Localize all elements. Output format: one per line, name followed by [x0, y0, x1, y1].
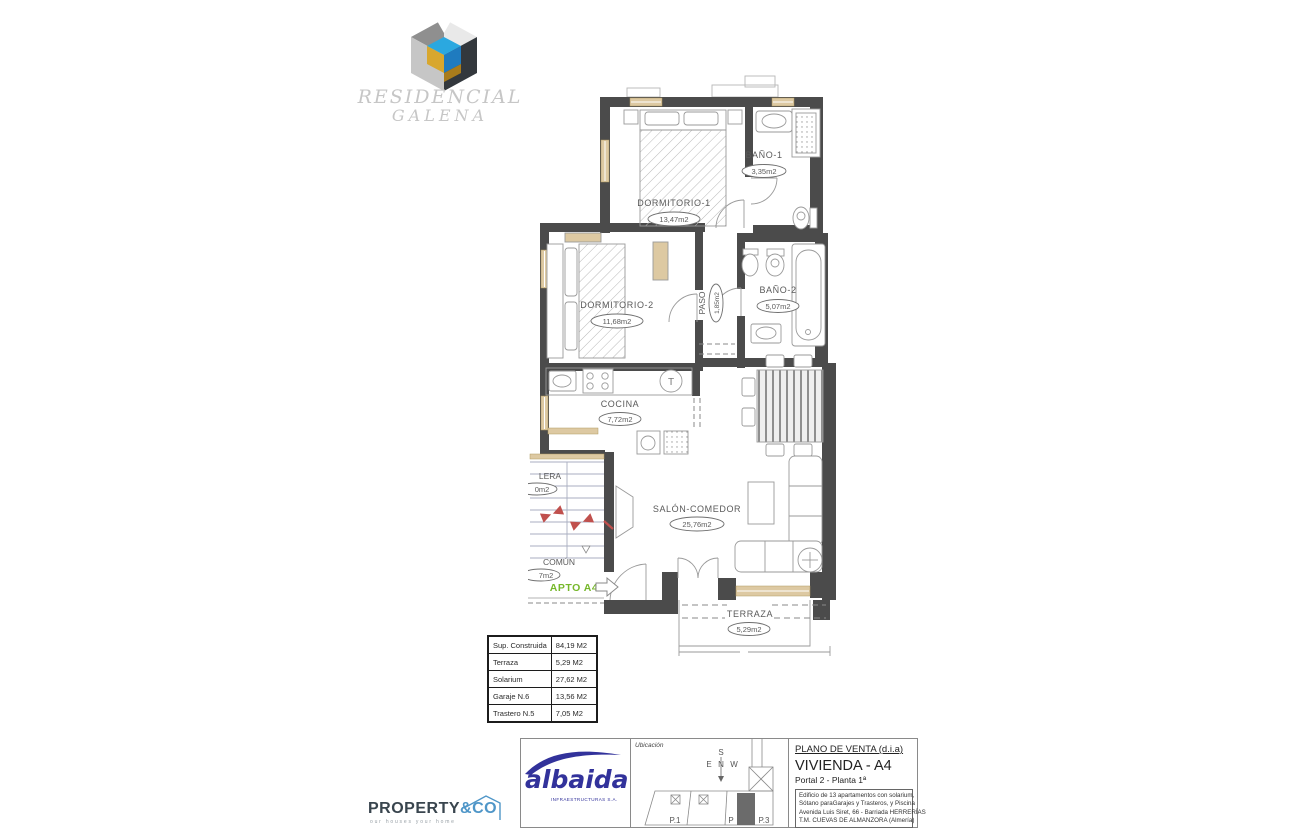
- room-area-bano-1: 3,35m2: [751, 167, 776, 176]
- room-label-bano-2: BAÑO-2: [759, 285, 796, 295]
- furniture: [546, 109, 825, 572]
- chair: [766, 355, 784, 367]
- title-block: albaida INFRAESTRUCTURAS S.A. Ubicación …: [520, 738, 918, 828]
- floor-plan: DORMITORIO-1 13,47m2 BAÑO-1 3,35m2 DORMI…: [528, 70, 850, 670]
- compass-w: W: [730, 760, 738, 769]
- dining-table: [757, 370, 823, 442]
- room-label-comun: COMÚN: [543, 557, 575, 567]
- room-label-terraza: TERRAZA: [727, 609, 773, 619]
- plot-label-p3: P.3: [759, 816, 771, 825]
- room-label-cocina: COCINA: [601, 399, 640, 409]
- room-area-salon: 25,76m2: [682, 520, 711, 529]
- area-row-label: Sup. Construida: [488, 636, 551, 654]
- coffee-table: [748, 482, 774, 524]
- water-heater-symbol: T: [668, 377, 674, 388]
- room-label-dormitorio-1: DORMITORIO-1: [637, 198, 711, 208]
- description-line: Edificio de 13 apartamentos con solarium…: [799, 792, 909, 800]
- wardrobe: [565, 233, 601, 242]
- compass-icon: S E N W: [706, 748, 738, 782]
- chair: [794, 444, 812, 456]
- stairs-down-marker: [582, 546, 590, 553]
- area-row-label: Terraza: [488, 654, 551, 671]
- room-area-bano-2: 5,07m2: [765, 302, 790, 311]
- chair: [766, 444, 784, 456]
- property-word: PROPERTY: [368, 800, 460, 817]
- brand-wordmark: RESIDENCIAL GALENA: [350, 88, 530, 124]
- area-row-label: Solarium: [488, 671, 551, 688]
- nightstand: [624, 110, 638, 124]
- bed-headboard: [547, 244, 563, 358]
- unit-title: VIVIENDA - A4: [795, 758, 913, 774]
- doc-title: PLANO DE VENTA (d.i.a): [795, 744, 913, 755]
- description-line: Avenida Luis Siret, 66 - Barriada HERRER…: [799, 809, 909, 817]
- room-label-paso: PASO: [697, 291, 707, 314]
- property-wordmark: PROPERTY&CO: [368, 800, 518, 818]
- plan-info-panel: PLANO DE VENTA (d.i.a) VIVIENDA - A4 Por…: [789, 739, 919, 827]
- room-area-escalera-clipped: 0m2: [535, 485, 550, 494]
- albaida-logo: albaida INFRAESTRUCTURAS S.A.: [521, 739, 631, 827]
- site-mini-map: S E N W P.1: [631, 739, 789, 827]
- bed-1: [640, 130, 726, 226]
- description-line: T.M. CUEVAS DE ALMANZORA (Almería): [799, 817, 909, 825]
- room-label-escalera-clipped: LERA: [539, 471, 562, 481]
- table-row: Trastero N.5 7,05 M2: [488, 705, 597, 723]
- room-area-dormitorio-2: 11,68m2: [603, 317, 632, 326]
- roof-outline: [627, 76, 778, 97]
- galena-cube-logo: [398, 16, 490, 94]
- room-area-cocina: 7,72m2: [607, 415, 632, 424]
- dishwasher: [664, 431, 688, 454]
- sofa-back: [789, 456, 822, 546]
- room-area-dormitorio-1: 13,47m2: [659, 215, 688, 224]
- room-area-terraza: 5,29m2: [736, 625, 761, 634]
- table-row: Garaje N.6 13,56 M2: [488, 688, 597, 705]
- compass-e: E: [706, 760, 711, 769]
- chair: [742, 378, 755, 396]
- chair: [794, 355, 812, 367]
- brand-line2: GALENA: [350, 108, 530, 124]
- building-description: Edificio de 13 apartamentos con solarium…: [795, 789, 913, 828]
- stairs-direction-arrows: [540, 505, 613, 531]
- albaida-wordmark: albaida: [525, 765, 629, 794]
- plot-label-p2: P: [728, 816, 733, 825]
- albaida-subtitle: INFRAESTRUCTURAS S.A.: [551, 797, 618, 802]
- table-row: Terraza 5,29 M2: [488, 654, 597, 671]
- area-row-label: Trastero N.5: [488, 705, 551, 723]
- area-row-label: Garaje N.6: [488, 688, 551, 705]
- room-label-salon: SALÓN-COMEDOR: [653, 504, 741, 514]
- plot-label-p1: P.1: [670, 816, 682, 825]
- compass-s: S: [718, 748, 723, 757]
- tv-unit: [616, 486, 633, 538]
- area-row-value: 84,19 M2: [551, 636, 597, 654]
- apto-a4-label: APTO A4: [550, 582, 598, 594]
- room-area-comun-clipped: 7m2: [539, 571, 554, 580]
- plan-sheet: RESIDENCIAL GALENA: [0, 0, 1290, 840]
- location-panel: Ubicación S E N W: [631, 739, 789, 827]
- area-row-value: 13,56 M2: [551, 688, 597, 705]
- table-row: Sup. Construida 84,19 M2: [488, 636, 597, 654]
- description-line: Sótano paraGarajes y Trasteros, y Piscin…: [799, 800, 909, 808]
- room-area-paso: 1,85m2: [714, 292, 721, 314]
- areas-table: Sup. Construida 84,19 M2 Terraza 5,29 M2…: [487, 635, 598, 723]
- table-row: Solarium 27,62 M2: [488, 671, 597, 688]
- chair: [742, 408, 755, 426]
- portal-floor: Portal 2 - Planta 1ª: [795, 775, 913, 785]
- stove: [583, 369, 613, 393]
- apto-entry-arrow-icon: [596, 578, 618, 596]
- area-row-value: 7,05 M2: [551, 705, 597, 723]
- nightstand: [728, 110, 742, 124]
- wardrobe: [653, 242, 668, 280]
- brand-line1: RESIDENCIAL: [350, 88, 530, 107]
- house-outline-icon: [460, 792, 504, 822]
- room-label-bano-1: BAÑO-1: [745, 150, 782, 160]
- room-label-dormitorio-2: DORMITORIO-2: [580, 300, 654, 310]
- area-row-value: 5,29 M2: [551, 654, 597, 671]
- area-row-value: 27,62 M2: [551, 671, 597, 688]
- highlighted-portal: [737, 793, 755, 825]
- property-co-logo: PROPERTY&CO our houses your home: [368, 800, 518, 836]
